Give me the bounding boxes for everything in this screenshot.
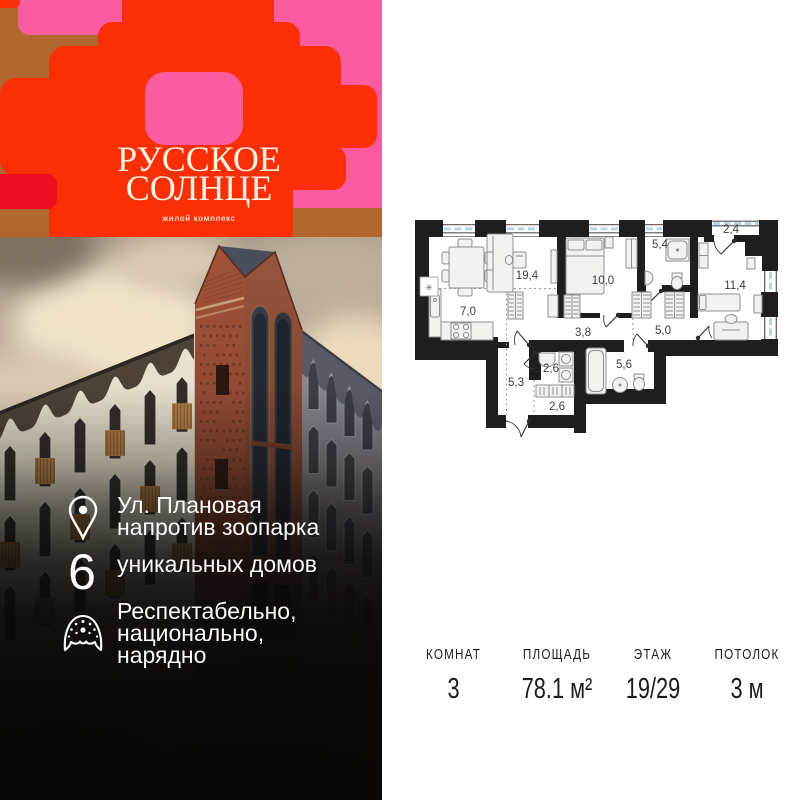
svg-text:5,6: 5,6: [616, 359, 632, 371]
svg-text:2,4: 2,4: [723, 224, 740, 236]
svg-text:5,0: 5,0: [655, 325, 671, 337]
svg-text:✳: ✳: [425, 283, 433, 293]
svg-text:2,6: 2,6: [543, 363, 559, 375]
svg-text:5,4: 5,4: [652, 239, 669, 251]
svg-text:10,0: 10,0: [592, 275, 614, 287]
svg-text:5,3: 5,3: [508, 377, 524, 389]
svg-text:11,4: 11,4: [724, 280, 746, 292]
svg-text:2,6: 2,6: [549, 401, 565, 413]
svg-text:7,0: 7,0: [460, 306, 476, 318]
svg-text:19,4: 19,4: [516, 270, 539, 282]
svg-text:3,8: 3,8: [575, 327, 591, 339]
